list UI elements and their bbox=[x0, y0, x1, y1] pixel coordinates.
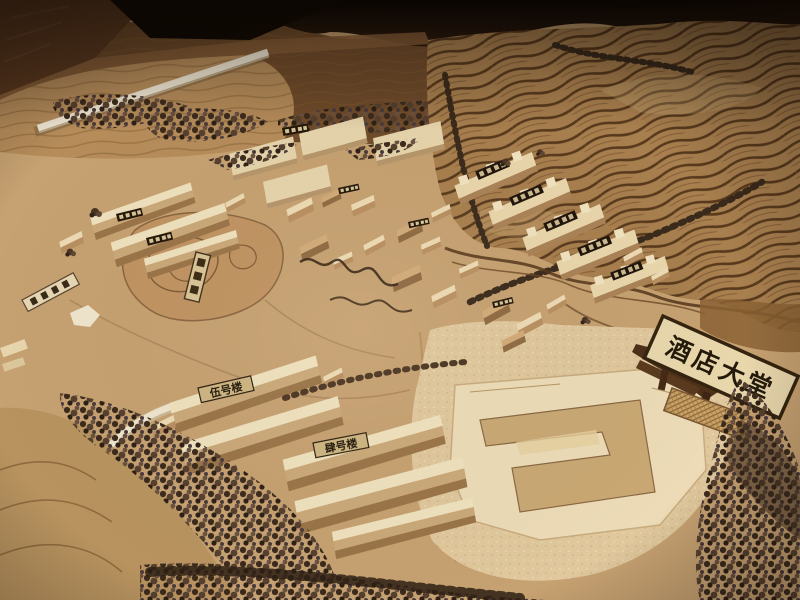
model-photo-canvas: 伍号楼 肆号楼 bbox=[0, 0, 800, 600]
model-photo: 伍号楼 肆号楼 bbox=[0, 0, 800, 600]
vignette-overlay bbox=[0, 0, 800, 600]
